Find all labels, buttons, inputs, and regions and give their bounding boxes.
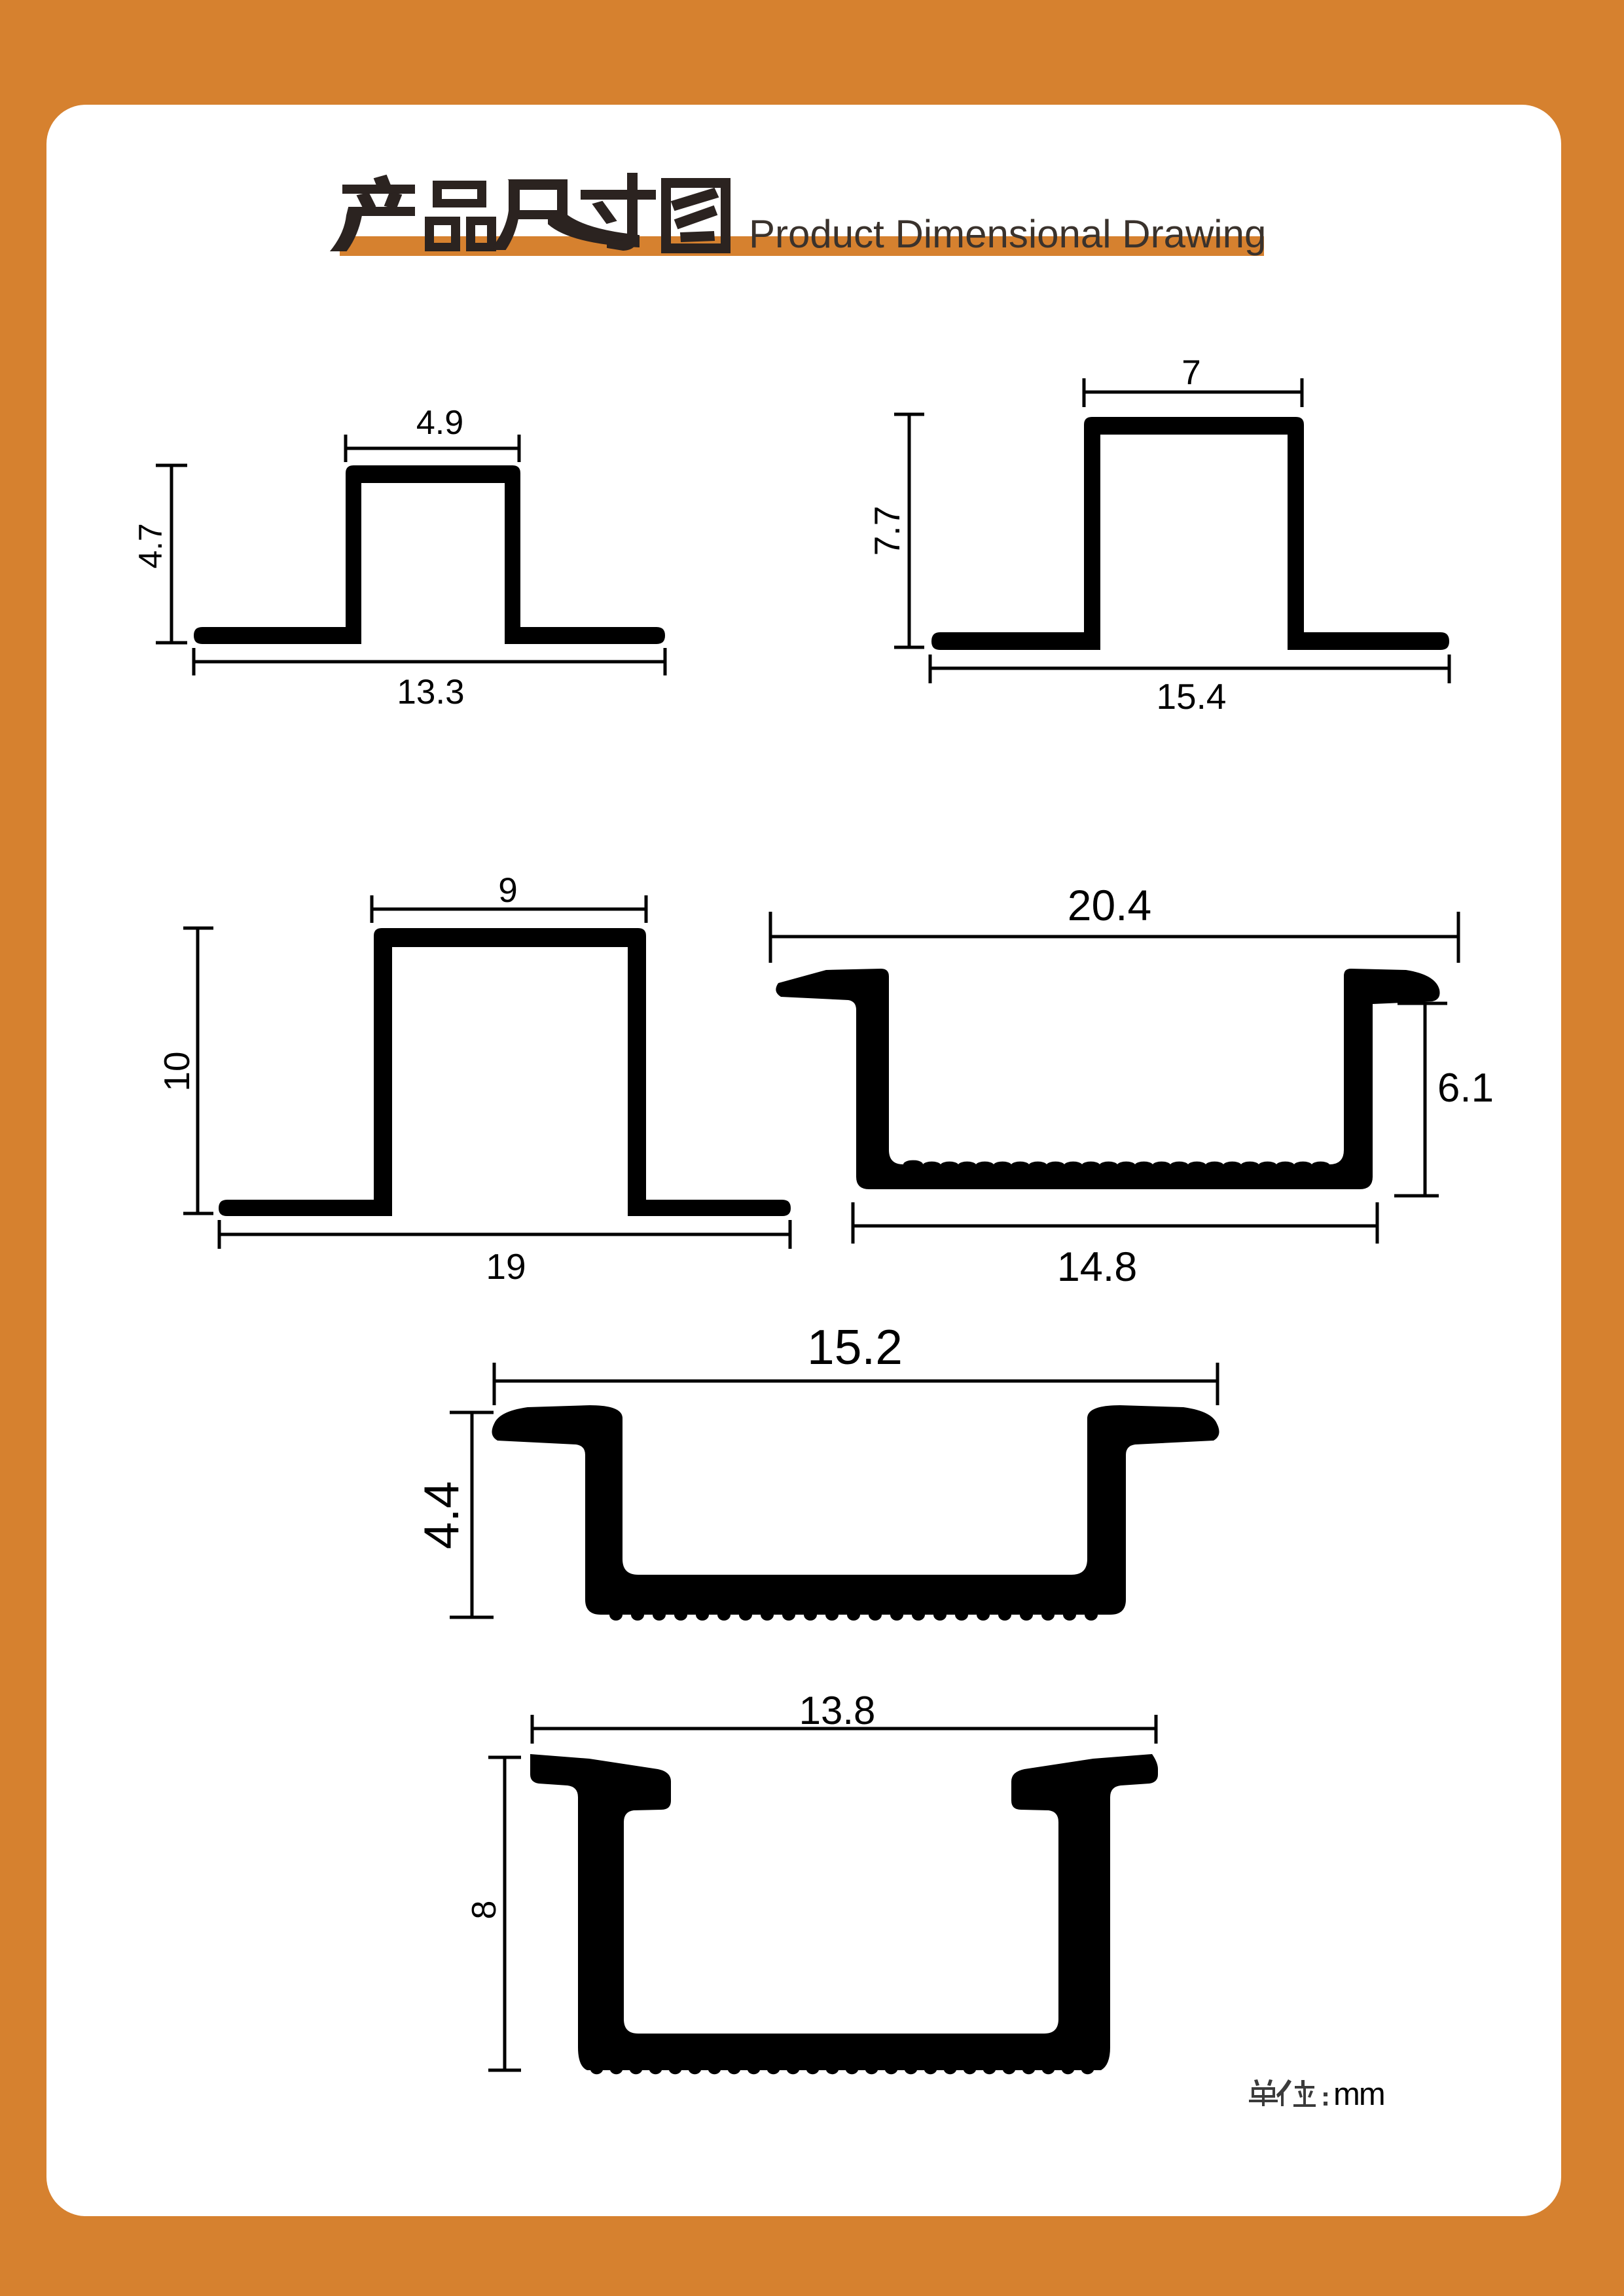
svg-text:15.4: 15.4 xyxy=(1156,676,1226,717)
svg-text:10: 10 xyxy=(156,1051,197,1091)
svg-text:7: 7 xyxy=(1182,353,1200,392)
svg-text:15.2: 15.2 xyxy=(807,1319,903,1374)
svg-text:Product Dimensional Drawing: Product Dimensional Drawing xyxy=(749,212,1266,256)
svg-text:9: 9 xyxy=(498,871,517,910)
svg-text:13.3: 13.3 xyxy=(397,673,464,711)
svg-text:4.4: 4.4 xyxy=(414,1481,469,1549)
svg-text:14.8: 14.8 xyxy=(1057,1244,1138,1290)
svg-text:8: 8 xyxy=(465,1901,503,1920)
svg-text:19: 19 xyxy=(486,1246,526,1287)
svg-text:20.4: 20.4 xyxy=(1068,881,1151,929)
svg-text:mm: mm xyxy=(1333,2077,1384,2112)
svg-text:7.7: 7.7 xyxy=(867,506,907,556)
svg-text:13.8: 13.8 xyxy=(799,1689,876,1732)
svg-text:6.1: 6.1 xyxy=(1437,1066,1494,1111)
svg-text:4.7: 4.7 xyxy=(132,523,169,569)
svg-text:4.9: 4.9 xyxy=(416,404,463,442)
